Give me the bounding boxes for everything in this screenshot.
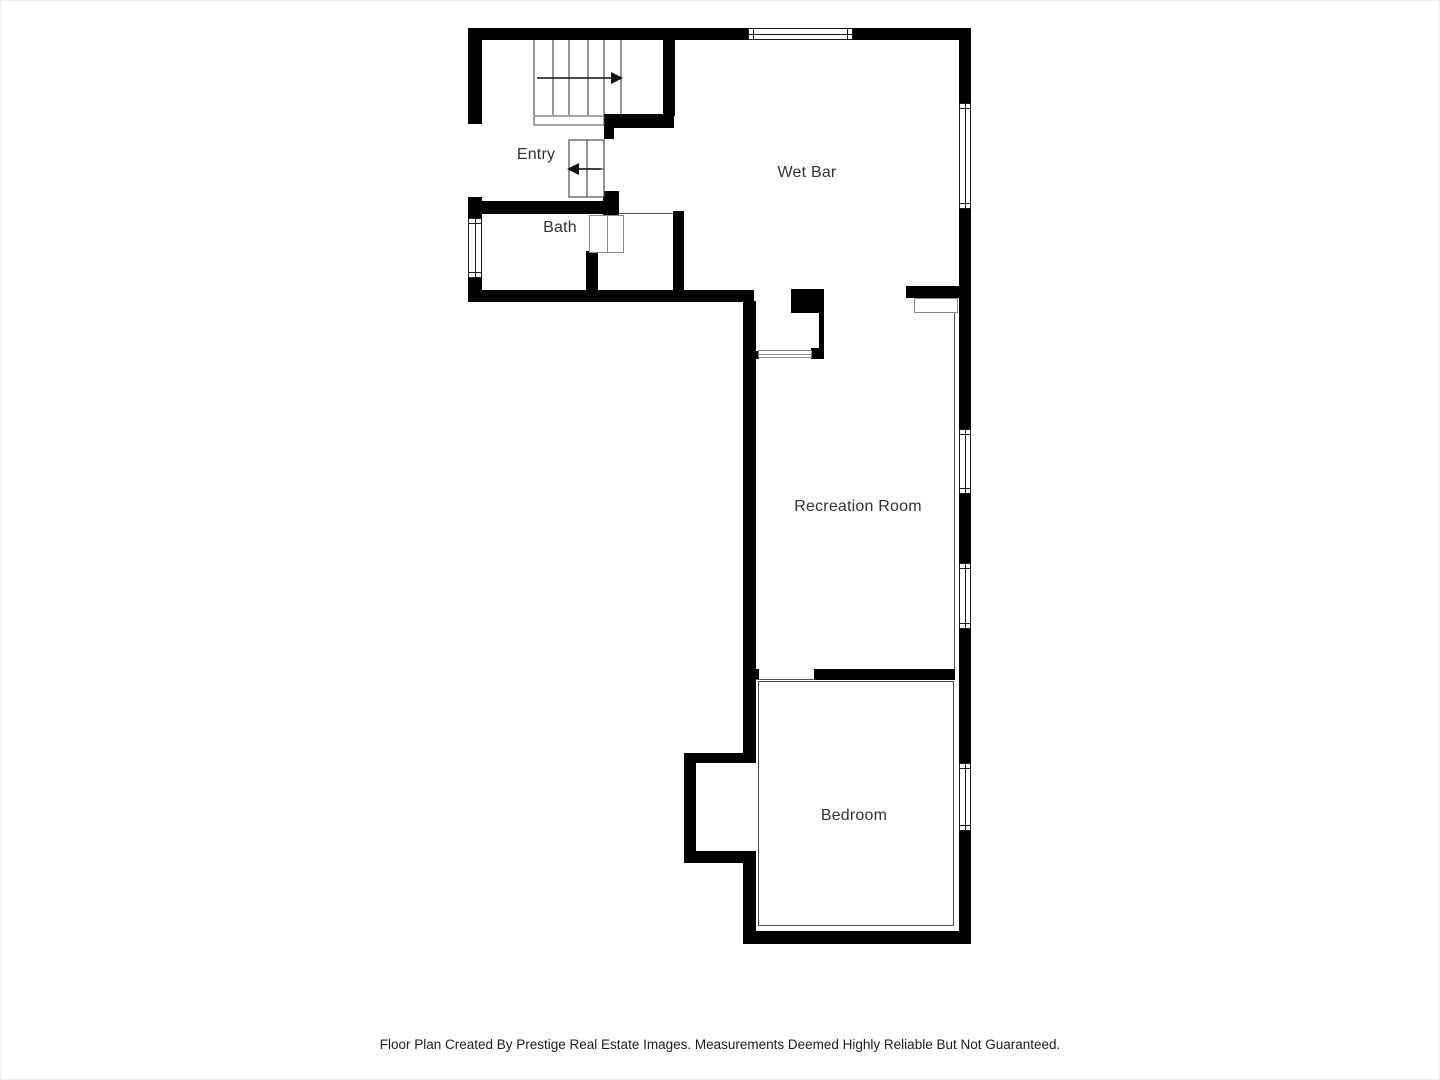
doorway-threshold-line [756, 679, 814, 680]
wall-bottom [743, 931, 971, 944]
wetbar-sliding-door-icon [914, 298, 958, 313]
wall-bedcloset-left [684, 753, 696, 863]
floor-plan-canvas: Entry Bath Wet Bar Recreation Room Bedro… [0, 0, 1440, 1080]
wall-smallroom-right [673, 211, 684, 291]
wall-right-c [959, 494, 971, 563]
wall-bath-bottom [468, 290, 754, 302]
room-label-recreation-room: Recreation Room [794, 498, 922, 516]
wall-wetbar-door-stub [906, 286, 971, 298]
wall-stair-bottom [604, 114, 674, 128]
wall-closet-block [791, 289, 824, 313]
wall-closet-corner-right [811, 348, 824, 359]
wall-entry-bath [468, 201, 606, 214]
window-icon-top [748, 28, 853, 40]
room-label-bath: Bath [543, 219, 577, 237]
wall-rec-bedroom-divider [814, 669, 955, 680]
entry-steps [569, 140, 604, 197]
wall-rec-left [743, 301, 756, 763]
wall-bedcloset-bottom [684, 851, 751, 863]
staircase-graphics [1, 1, 1440, 1080]
wall-right-e [959, 831, 971, 944]
stair-down-arrow-icon [567, 163, 601, 175]
stair-up-arrow-icon [537, 72, 623, 84]
window-icon-wetbar-right [959, 103, 971, 209]
window-icon-bath [468, 218, 482, 278]
cased-opening-line [619, 213, 673, 214]
wall-bath-divider [586, 251, 598, 291]
room-label-entry: Entry [517, 146, 555, 164]
window-icon-rec-2 [959, 563, 971, 629]
wall-top [468, 28, 971, 40]
room-label-bedroom: Bedroom [821, 807, 887, 825]
bath-door-icon [589, 215, 624, 253]
wall-bath-door-block [603, 191, 619, 216]
disclaimer-text: Floor Plan Created By Prestige Real Esta… [1, 1037, 1439, 1052]
closet-door-icon [758, 350, 812, 358]
bedroom-interior-outline [758, 681, 954, 926]
wall-stair-stub [604, 128, 614, 139]
wall-stair-right [663, 40, 675, 116]
rec-room-interior-line [954, 313, 955, 669]
wall-right-d [959, 629, 971, 763]
wall-bedcloset-top [684, 753, 751, 763]
staircase-landing [534, 116, 604, 125]
wall-right-top [959, 28, 971, 103]
window-icon-bedroom [959, 763, 971, 831]
wall-left-upper [468, 28, 482, 124]
room-label-wet-bar: Wet Bar [778, 164, 837, 182]
wall-closet-right-edge [819, 313, 824, 348]
wall-right-b [959, 298, 971, 429]
window-icon-rec-1 [959, 429, 971, 494]
staircase-up-treads [534, 40, 621, 115]
